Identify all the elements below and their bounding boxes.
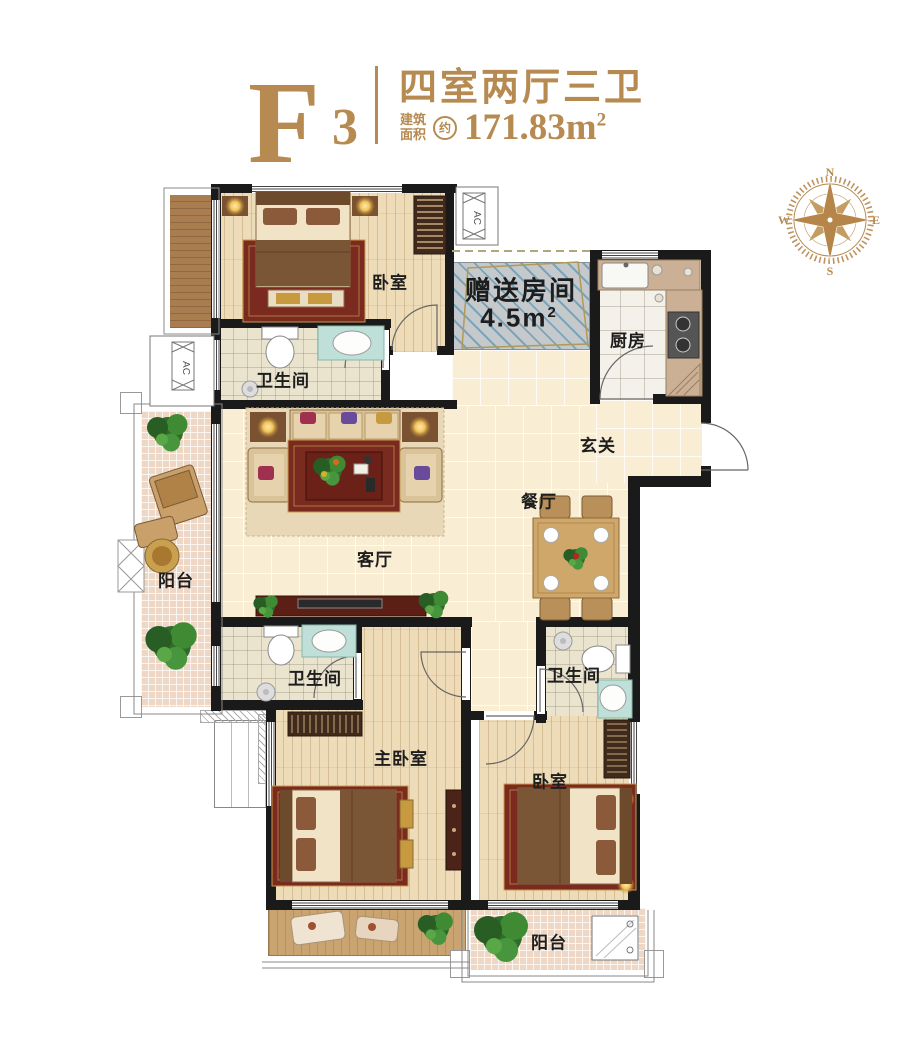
- compass-icon: N E S W: [778, 165, 880, 278]
- room-label-balcony-left: 阳台: [158, 567, 194, 592]
- room-label-balcony-bottom: 阳台: [531, 929, 567, 954]
- toilet: [268, 635, 294, 665]
- window-living-balcony: [212, 424, 220, 602]
- room-label-kitchen: 厨房: [610, 327, 646, 352]
- ac-platform-lower-left: [118, 540, 144, 592]
- compass-west-label: W: [778, 213, 790, 227]
- room-label-living: 客厅: [357, 546, 393, 571]
- washing-machine: [592, 916, 638, 960]
- compass-east-label: E: [872, 213, 880, 227]
- tv-cabinet: [253, 591, 448, 619]
- bay-seat-items: [290, 911, 453, 946]
- ac-label-top: AC: [471, 211, 482, 225]
- room-label-bathroom-right: 卫生间: [547, 662, 601, 687]
- balcony-left-furniture: [134, 414, 209, 670]
- plan-overlay: AC AC: [0, 0, 897, 1043]
- room-label-bathroom-top: 卫生间: [256, 367, 310, 392]
- sink: [312, 630, 346, 652]
- compass-south-label: S: [827, 264, 834, 278]
- door-bedroom-top: [392, 305, 437, 350]
- ac-label-left: AC: [180, 361, 191, 375]
- room-label-master-bedroom: 主卧室: [374, 745, 428, 770]
- room-label-bedroom-top: 卧室: [372, 269, 408, 294]
- room-label-gift-area: 4.5m2: [480, 303, 558, 334]
- door-entrance: [701, 423, 748, 470]
- ac-platform-left: AC: [150, 336, 214, 406]
- lamp-glow: [257, 416, 279, 438]
- window-bathroom-master: [212, 646, 220, 686]
- window-master-bottom: [292, 901, 448, 909]
- lounge-chair: [148, 464, 208, 528]
- sink: [333, 331, 371, 355]
- ac-platform-top: AC: [456, 187, 498, 245]
- railing-bay-seat: [262, 962, 470, 968]
- dresser-master: [446, 790, 462, 870]
- toilet: [266, 336, 294, 368]
- wardrobe-master: [288, 712, 362, 736]
- wardrobe-bedroom-top: [414, 196, 446, 254]
- floorplan-page: F 3 四室两厅三卫 建筑 面积 约 171.83m2: [0, 0, 897, 1043]
- lamp-glow: [355, 196, 375, 216]
- lamp-glow: [409, 416, 431, 438]
- room-label-entry: 玄关: [580, 432, 616, 457]
- sink: [600, 685, 626, 711]
- dining-set: [533, 496, 619, 620]
- living-room-furniture: [246, 408, 448, 618]
- window-kitchen: [602, 251, 658, 259]
- gift-area-sup: 2: [547, 304, 557, 321]
- master-bedroom-furniture: [272, 712, 462, 886]
- compass-north-label: N: [826, 165, 835, 179]
- bedroom-top-furniture: [222, 192, 446, 322]
- room-label-dining: 餐厅: [521, 488, 557, 513]
- room-label-bathroom-master: 卫生间: [288, 665, 342, 690]
- room-label-bedroom-bottom: 卧室: [532, 768, 568, 793]
- lamp-glow: [225, 196, 245, 216]
- door-master-bedroom: [421, 652, 466, 697]
- bathroom-master-fixtures: [257, 625, 356, 701]
- railing-balcony-small: [164, 188, 219, 334]
- door-kitchen: [600, 346, 653, 399]
- door-bedroom-bottom: [486, 716, 534, 764]
- wardrobe-bedroom-bottom: [604, 720, 630, 778]
- window-slider-bedroom-bottom: [488, 901, 618, 909]
